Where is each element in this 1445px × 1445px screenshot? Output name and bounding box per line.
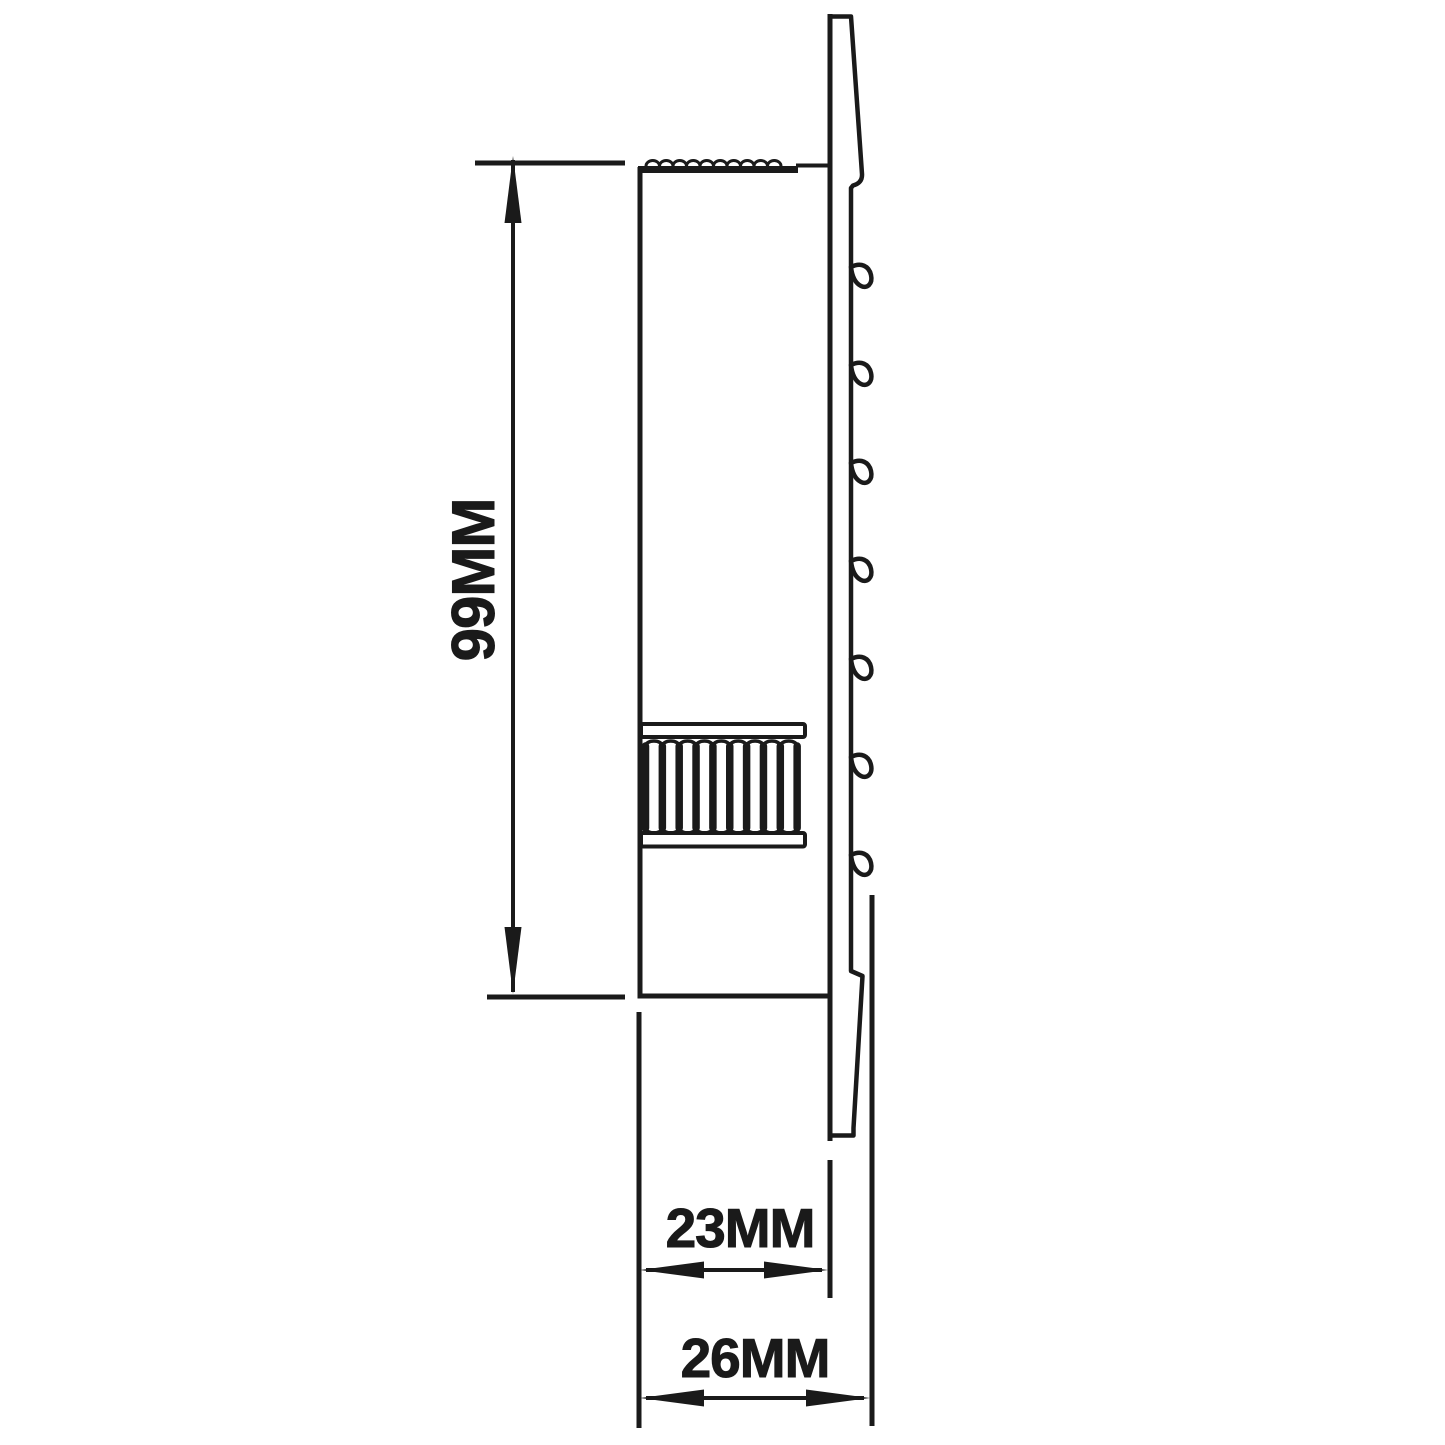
- barb-icon: [851, 461, 871, 483]
- dim-height-arrow-down: [505, 927, 522, 994]
- barb-icon: [851, 755, 871, 777]
- rib-group: [646, 746, 798, 828]
- dim-inner-arrow-right: [764, 1262, 828, 1279]
- dim-outer-arrow-left: [640, 1390, 704, 1407]
- barb-icon: [851, 657, 871, 679]
- dim-outer-label: 26MM: [681, 1327, 830, 1389]
- dim-height-arrow-up: [505, 156, 522, 223]
- rib-scallop-bottom: [646, 828, 798, 833]
- barb-group: [851, 265, 871, 875]
- barb-icon: [851, 559, 871, 581]
- knurl-strip: [646, 161, 781, 166]
- technical-drawing: 99MM 23MM 26MM: [0, 0, 1445, 1445]
- barb-icon: [851, 363, 871, 385]
- barb-icon: [851, 853, 871, 875]
- component-profile: [638, 14, 872, 1141]
- rib-top-bar: [641, 724, 805, 737]
- rib-bottom-bar: [641, 833, 805, 847]
- rib-scallop-top: [646, 741, 798, 746]
- dim-height-label: 99MM: [440, 499, 507, 662]
- dim-outer-arrow-right: [806, 1390, 870, 1407]
- dim-inner-label: 23MM: [666, 1197, 815, 1259]
- drawing-svg: 99MM 23MM 26MM: [0, 0, 1445, 1445]
- dim-inner-arrow-left: [640, 1262, 704, 1279]
- dimension-annotations: 99MM 23MM 26MM: [440, 156, 872, 1428]
- barb-icon: [851, 265, 871, 287]
